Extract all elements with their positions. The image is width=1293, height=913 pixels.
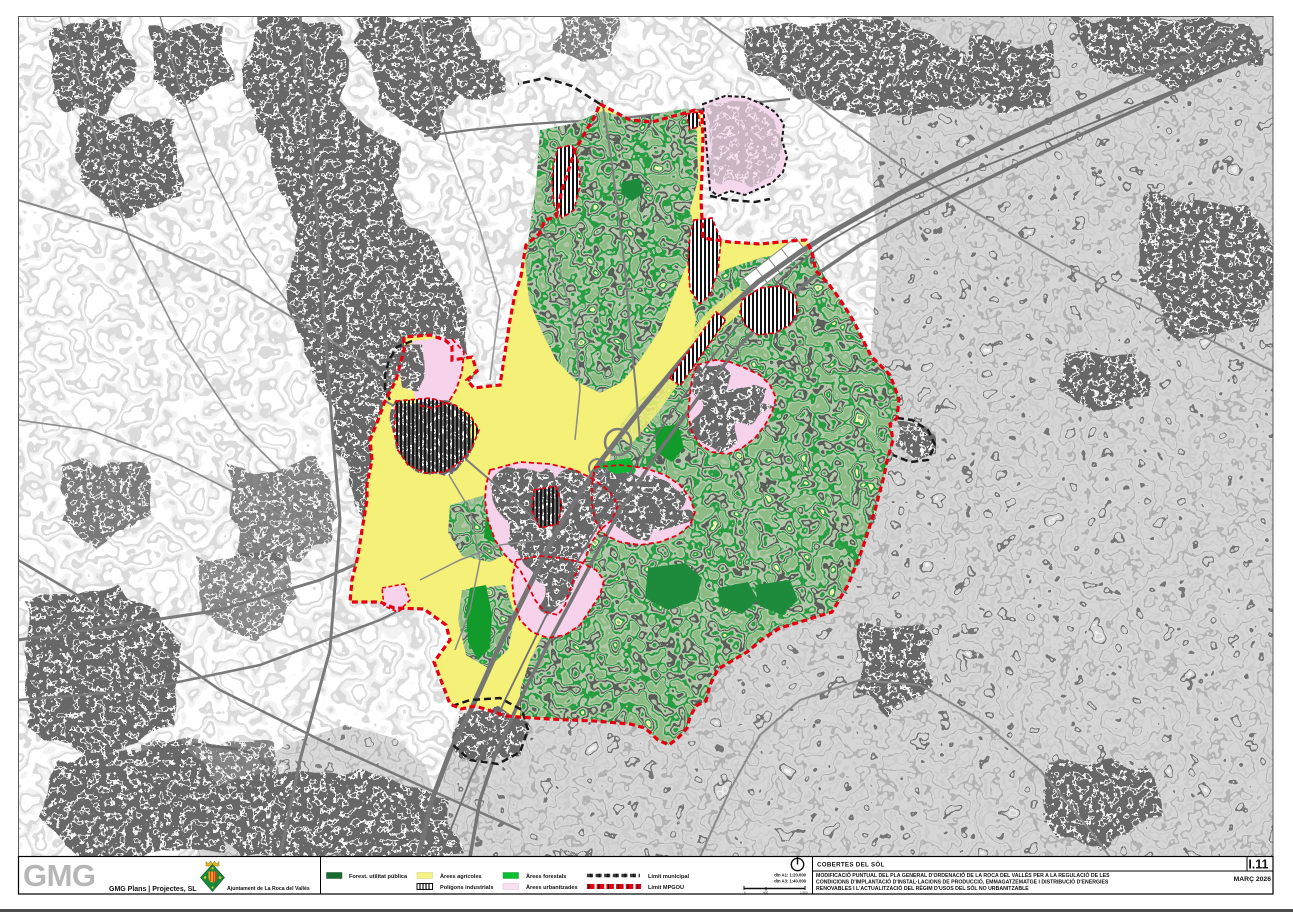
svg-text:COBERTES DEL SÒL: COBERTES DEL SÒL bbox=[817, 861, 885, 869]
svg-text:din A1: 1:20.000: din A1: 1:20.000 bbox=[774, 873, 806, 878]
svg-text:1.000: 1.000 bbox=[800, 891, 808, 895]
svg-text:I.11: I.11 bbox=[1248, 858, 1268, 872]
svg-text:RENOVABLES I L'ACTUALITZACIÓ D: RENOVABLES I L'ACTUALITZACIÓ DEL RÈGIM D… bbox=[816, 884, 1029, 892]
svg-text:MODIFICACIÓ PUNTUAL DEL PLA GE: MODIFICACIÓ PUNTUAL DEL PLA GENERAL D'OR… bbox=[816, 871, 1110, 879]
svg-text:Límit municipal: Límit municipal bbox=[648, 874, 689, 880]
svg-text:Àrees agrícoles: Àrees agrícoles bbox=[440, 873, 482, 880]
svg-text:Límit MPGOU: Límit MPGOU bbox=[648, 885, 684, 891]
svg-text:MARÇ 2026: MARÇ 2026 bbox=[1234, 876, 1272, 883]
svg-text:Àrees urbanitzades: Àrees urbanitzades bbox=[526, 884, 578, 891]
svg-text:Àrees forestals: Àrees forestals bbox=[526, 873, 566, 880]
svg-text:CONDICIONS D'IMPLANTACIÓ D'INS: CONDICIONS D'IMPLANTACIÓ D'INSTAL·LACION… bbox=[816, 878, 1109, 886]
svg-text:Ajuntament de La Roca del Vall: Ajuntament de La Roca del Vallès bbox=[227, 886, 310, 892]
svg-text:GMG Plans | Projectes, SL: GMG Plans | Projectes, SL bbox=[109, 886, 197, 893]
svg-text:400: 400 bbox=[763, 891, 768, 895]
svg-text:Forest. utilitat pública: Forest. utilitat pública bbox=[349, 874, 408, 880]
svg-text:GMG: GMG bbox=[23, 858, 96, 893]
svg-text:Polígons industrials: Polígons industrials bbox=[440, 885, 493, 891]
svg-text:din A3: 1:40.000: din A3: 1:40.000 bbox=[774, 879, 806, 884]
